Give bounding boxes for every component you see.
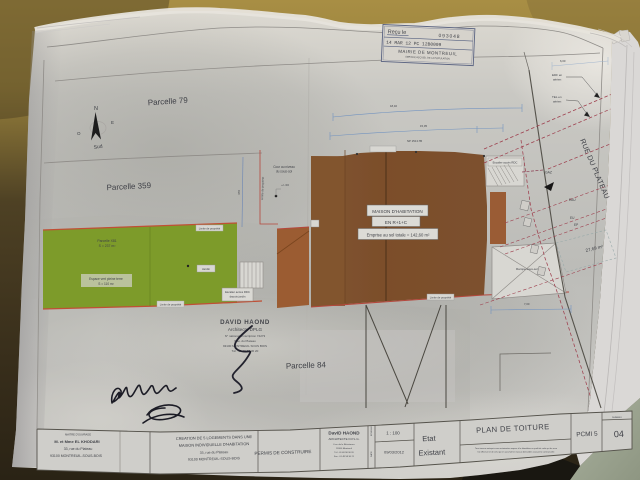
svg-text:fait effectuer et de celui qui: fait effectuer et de celui qui en aura f… — [478, 451, 556, 454]
svg-text:ECHELLE: ECHELLE — [371, 425, 373, 436]
svg-text:Espace vert pleine terre: Espace vert pleine terre — [89, 277, 123, 281]
svg-text:EAU: EAU — [569, 198, 576, 202]
svg-text:M. et Mme EL KHODARI: M. et Mme EL KHODARI — [54, 439, 99, 444]
svg-text:EDF en: EDF en — [552, 73, 563, 77]
svg-text:470: 470 — [237, 190, 241, 195]
svg-text:Escalier accès RDC: Escalier accès RDC — [493, 161, 518, 165]
svg-text:EU: EU — [570, 216, 575, 220]
svg-text:33, rue du Plateau: 33, rue du Plateau — [64, 447, 93, 451]
svg-text:Limite de propriete: Limite de propriete — [260, 176, 265, 200]
svg-text:15,05: 15,05 — [420, 124, 427, 128]
svg-text:Etat: Etat — [422, 434, 437, 444]
svg-text:Parcelle 84: Parcelle 84 — [286, 360, 327, 370]
svg-text:Emprise au sol totale = 142,60: Emprise au sol totale = 142,60 m² — [367, 233, 430, 238]
svg-text:aérien: aérien — [553, 78, 562, 82]
svg-text:Existant: Existant — [418, 447, 446, 457]
svg-text:Limite de propriété: Limite de propriété — [430, 296, 452, 300]
svg-text:18,40: 18,40 — [390, 104, 397, 108]
svg-text:ARCHITECTE D.P.L.G.: ARCHITECTE D.P.L.G. — [328, 437, 359, 441]
svg-text:S = 237 m²: S = 237 m² — [99, 244, 117, 248]
svg-text:E: E — [111, 120, 114, 125]
svg-text:93100 MONTREUIL SOUS BOIS: 93100 MONTREUIL SOUS BOIS — [223, 344, 267, 348]
svg-text:O: O — [77, 131, 81, 136]
svg-text:6 av. de la Résistance: 6 av. de la Résistance — [333, 443, 355, 446]
svg-text:MAISON D'HABITATION: MAISON D'HABITATION — [372, 209, 422, 214]
svg-text:S = 110 m²: S = 110 m² — [98, 282, 113, 286]
svg-text:04: 04 — [614, 429, 624, 439]
svg-text:Jardin: Jardin — [202, 267, 211, 271]
svg-text:Fax : 01 48 58 30 21: Fax : 01 48 58 30 21 — [334, 456, 355, 458]
svg-text:6,00: 6,00 — [560, 59, 566, 63]
svg-text:DATE: DATE — [370, 451, 373, 457]
svg-text:Cour au niveau: Cour au niveau — [273, 165, 295, 169]
svg-text:93100 Montreuil: 93100 Montreuil — [336, 447, 352, 450]
svg-text:N: N — [94, 106, 98, 112]
svg-text:Limite de propriété: Limite de propriété — [160, 303, 182, 307]
svg-text:du sous-sol: du sous-sol — [276, 170, 293, 174]
svg-text:MAITRE D'OUVRAGE: MAITRE D'OUVRAGE — [65, 433, 91, 437]
svg-text:EP: EP — [574, 223, 578, 227]
svg-text:Rampe sous-sol: Rampe sous-sol — [516, 267, 538, 271]
svg-text:1 : 100: 1 : 100 — [386, 431, 400, 436]
svg-text:GAZ: GAZ — [545, 171, 552, 175]
svg-text:7,00: 7,00 — [524, 302, 530, 306]
svg-text:33, rue du Plateau: 33, rue du Plateau — [200, 450, 229, 455]
svg-text:NP 150.17B: NP 150.17B — [407, 139, 422, 143]
svg-text:aérien: aérien — [553, 100, 562, 104]
svg-text:Escalier accès RDC: Escalier accès RDC — [225, 290, 250, 294]
svg-text:PCMI 5: PCMI 5 — [576, 431, 598, 439]
svg-text:TEL en: TEL en — [552, 95, 562, 99]
svg-text:093048: 093048 — [438, 33, 460, 40]
svg-text:+/- 00: +/- 00 — [281, 183, 289, 187]
svg-text:DaviD HAOND: DaviD HAOND — [328, 431, 360, 436]
svg-text:Parcelle X81: Parcelle X81 — [97, 239, 116, 243]
svg-text:Tél : 01 48 58 30 20: Tél : 01 48 58 30 20 — [334, 452, 354, 454]
svg-text:Tous travaux entrepris sans au: Tous travaux entrepris sans autorisation… — [475, 447, 558, 450]
svg-text:EN R+1+C: EN R+1+C — [385, 220, 408, 225]
svg-text:N° national d'inscription 7427: N° national d'inscription 74273 — [225, 334, 266, 338]
svg-text:DAVID HAOND: DAVID HAOND — [220, 319, 270, 326]
svg-text:NUMERO: NUMERO — [612, 417, 622, 419]
svg-text:09/03/2012: 09/03/2012 — [384, 450, 405, 455]
svg-text:depuis jardin: depuis jardin — [230, 295, 246, 299]
svg-text:Limite de propriété: Limite de propriété — [199, 227, 221, 231]
svg-text:93100 MONTREUIL-SOUS-BOIS: 93100 MONTREUIL-SOUS-BOIS — [50, 454, 103, 458]
